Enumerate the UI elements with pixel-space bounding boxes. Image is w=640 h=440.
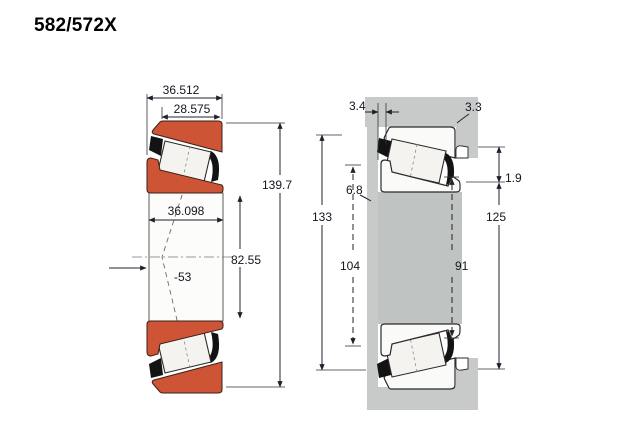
dim-label-125: 125 [486, 210, 506, 224]
bearing-section-bottom [147, 321, 223, 393]
dim-label-cone-backface: 6.8 [346, 183, 363, 197]
right-view-mounted-section: 3.4 3.3 6.8 1.9 125 133 104 91 [312, 97, 522, 410]
left-view-bearing-section: 36.512 28.575 139.7 36.098 82.55 -53 [109, 83, 292, 393]
housing-top-slab [365, 97, 478, 127]
mounted-bearing-bottom [377, 324, 460, 389]
dim-label-housing-fillet: 3.3 [465, 100, 482, 114]
catalog-page: { "title": "582/572X", "left_view": { "n… [0, 0, 640, 440]
dim-label-cup-standout: 1.9 [505, 171, 522, 185]
shaft-section [378, 192, 462, 324]
dim-label-od: 139.7 [262, 178, 292, 192]
housing-relief-notch-top [456, 146, 468, 158]
dim-label-backing-clearance: 3.4 [349, 99, 366, 113]
dim-label-total-width: 36.512 [163, 83, 200, 97]
shaft-spacer-strip [367, 127, 378, 387]
mounted-bearing-top [377, 127, 460, 192]
dim-label-cone-width: 36.098 [168, 204, 205, 218]
housing-relief-notch-bottom [456, 358, 468, 370]
dim-label-cup-width: 28.575 [174, 102, 211, 116]
dim-label-91: 91 [455, 259, 469, 273]
bearing-section-top [147, 121, 223, 193]
cage-left [149, 136, 163, 156]
bearing-drawing: 36.512 28.575 139.7 36.098 82.55 -53 [0, 0, 640, 440]
dim-label-bore: 82.55 [231, 253, 261, 267]
dim-label-104: 104 [340, 259, 360, 273]
dim-label-133: 133 [312, 210, 332, 224]
housing-bottom-slab [367, 387, 478, 410]
dim-label-angle: -53 [174, 270, 192, 284]
